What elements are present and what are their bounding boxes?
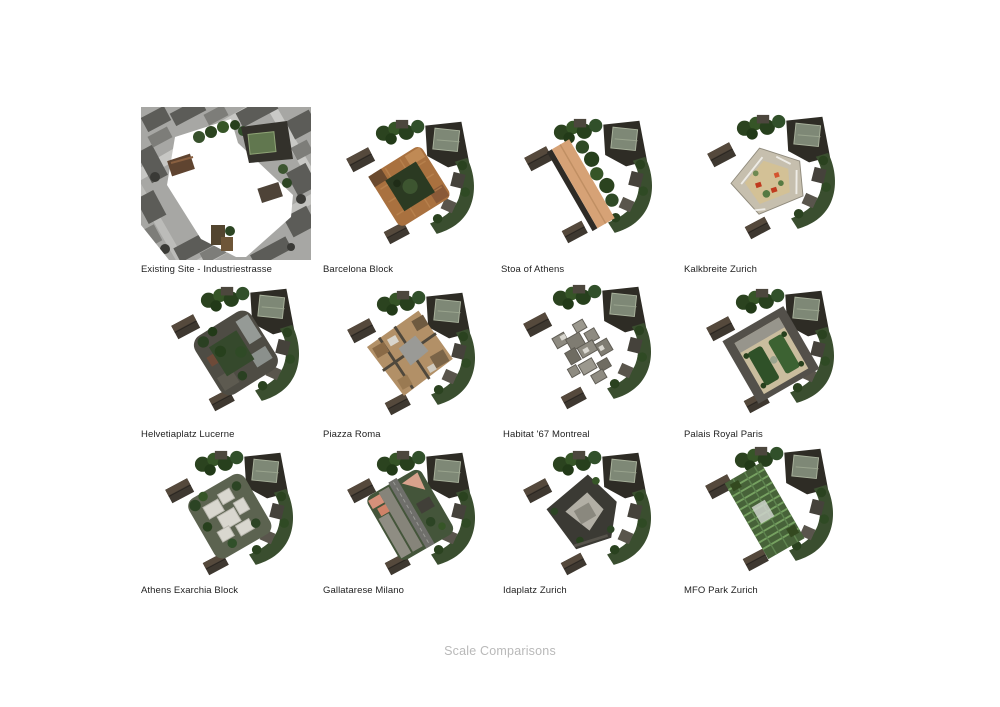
aerial-image-helvetiaplatz-lucerne xyxy=(161,285,313,418)
tile-label-mfo-park: MFO Park Zurich xyxy=(684,585,758,596)
aerial-image-kalkbreite-zurich xyxy=(697,113,849,246)
aerial-image-palais-royal-paris xyxy=(696,287,848,420)
tile-label-barcelona-block: Barcelona Block xyxy=(323,264,393,275)
aerial-image-habitat-67-montreal xyxy=(513,283,665,416)
tile-label-gallatarese: Gallatarese Milano xyxy=(323,585,404,596)
tile-label-habitat-67: Habitat '67 Montreal xyxy=(503,429,590,440)
aerial-image-mfo-park-zurich xyxy=(695,445,847,578)
sheet-title: Scale Comparisons xyxy=(0,644,1000,658)
tile-label-existing-site: Existing Site - Industriestrasse xyxy=(141,264,272,275)
tile-label-athens-exarchia: Athens Exarchia Block xyxy=(141,585,238,596)
aerial-image-stoa-of-athens xyxy=(514,117,666,250)
tile-label-piazza-roma: Piazza Roma xyxy=(323,429,381,440)
tile-label-palais-royal: Palais Royal Paris xyxy=(684,429,763,440)
aerial-image-gallatarese-milano xyxy=(337,449,489,582)
aerial-image-athens-exarchia-block xyxy=(155,449,307,582)
tile-label-idaplatz: Idaplatz Zurich xyxy=(503,585,567,596)
aerial-image-existing-site xyxy=(141,107,311,260)
tile-label-kalkbreite-zurich: Kalkbreite Zurich xyxy=(684,264,757,275)
aerial-image-barcelona-block xyxy=(336,118,488,251)
aerial-image-idaplatz-zurich xyxy=(513,449,665,582)
tile-label-helvetiaplatz: Helvetiaplatz Lucerne xyxy=(141,429,234,440)
aerial-image-piazza-roma xyxy=(337,289,489,422)
tile-label-stoa-of-athens: Stoa of Athens xyxy=(501,264,564,275)
presentation-sheet: Existing Site - Industriestrasse Barcelo… xyxy=(0,0,1000,707)
